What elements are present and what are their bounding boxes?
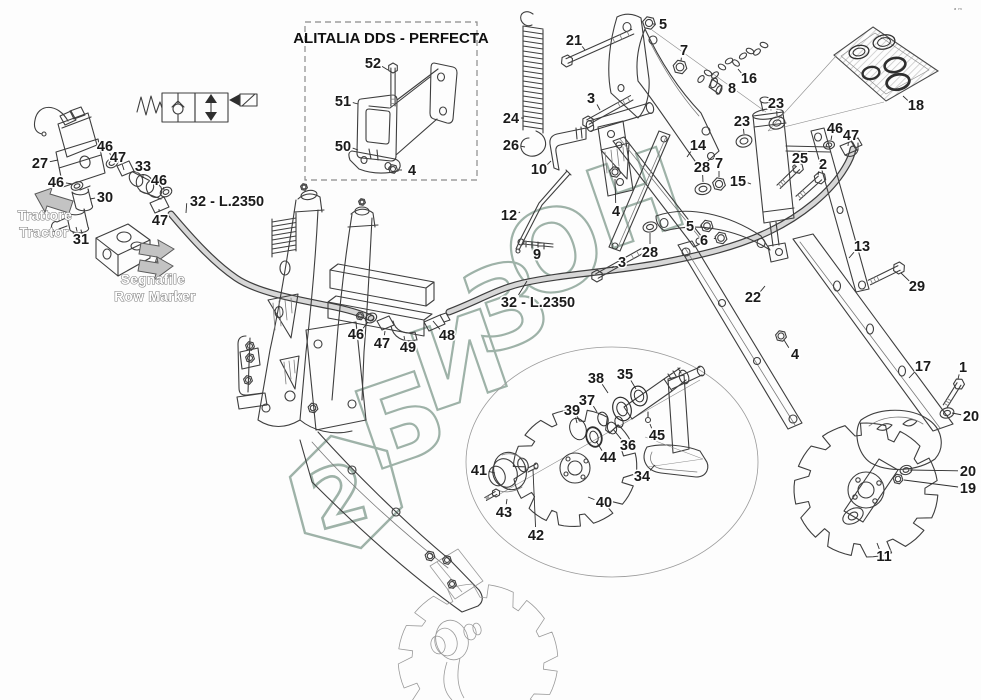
- leader-line: [50, 160, 58, 162]
- hex-nut-bore: [450, 582, 455, 587]
- part-label: 35: [617, 367, 633, 383]
- part-label: 50: [335, 139, 351, 155]
- hydraulic-cylinder: [752, 97, 862, 262]
- hex-nut-bore: [778, 333, 784, 339]
- bolt-shank: [777, 166, 800, 188]
- seal-kit-panel: [768, 27, 938, 131]
- parts-diagram-canvas: 2 БИЗОН: [0, 0, 981, 700]
- leader-line: [910, 470, 958, 471]
- part-label: 9: [533, 247, 541, 263]
- part-label: 26: [503, 138, 519, 154]
- part-label: 13: [854, 239, 870, 255]
- part-label: 5: [659, 17, 667, 33]
- hex-nut: [715, 232, 727, 243]
- bottom-disc-assembly: [388, 549, 568, 700]
- part-label: 20: [960, 464, 976, 480]
- leader-line: [904, 480, 958, 487]
- tension-spring: [521, 12, 546, 156]
- part-label: 11: [876, 549, 891, 565]
- part-label: 1: [959, 360, 967, 376]
- tractor-label-it: Trattore: [18, 208, 72, 223]
- hex-nut-bore: [391, 167, 396, 172]
- part-label: 6: [700, 233, 708, 249]
- hex-nut-bore: [310, 405, 316, 411]
- part-label: 5: [686, 219, 694, 235]
- chain-link: [697, 74, 706, 83]
- hex-nut: [776, 331, 787, 341]
- chain-link: [759, 41, 768, 48]
- part-label: 15: [730, 174, 746, 190]
- part-label: 29: [909, 279, 925, 295]
- part-label: 28: [694, 160, 710, 176]
- part-label: 49: [400, 340, 416, 356]
- washer-bore: [699, 186, 708, 193]
- washer: [70, 180, 84, 192]
- washer-bore: [903, 467, 910, 473]
- part-label: 7: [680, 43, 688, 59]
- marker-label-en: Row Marker: [114, 289, 196, 304]
- leader-line: [382, 66, 388, 70]
- hex-nut-bore: [715, 180, 722, 187]
- part-label: 14: [690, 138, 706, 154]
- part-label: 20: [963, 409, 979, 425]
- ring: [584, 425, 604, 449]
- part-label: 47: [843, 128, 859, 144]
- washer: [694, 182, 712, 196]
- part-label: 44: [600, 450, 616, 466]
- part-label: 30: [97, 190, 113, 206]
- parts-diagram-page: 2 БИЗОН: [0, 0, 981, 700]
- notched-disc: [790, 418, 943, 561]
- leader-line: [404, 336, 405, 339]
- part-label: 8: [728, 81, 736, 97]
- chain-link: [738, 52, 747, 61]
- part-label: 41: [471, 463, 487, 479]
- part-label: 46: [348, 327, 364, 343]
- part-label: 38: [588, 371, 604, 387]
- part-label: 23: [768, 96, 784, 112]
- part-label: 28: [642, 245, 658, 261]
- part-label: 10: [531, 162, 547, 178]
- corner-mark: ᵃ ᵐ: [954, 7, 962, 14]
- leader-line: [76, 227, 77, 232]
- part-label: 43: [496, 505, 512, 521]
- marker-label-it: Segnafile: [121, 272, 186, 287]
- part-label: 46: [827, 121, 843, 137]
- part-label: 3: [587, 91, 595, 107]
- part-label: 45: [649, 428, 665, 444]
- part-label: 46: [48, 175, 64, 191]
- chain-link: [731, 59, 740, 68]
- bolt-head: [389, 63, 398, 73]
- part-label: 21: [566, 33, 582, 49]
- washer-bore: [739, 137, 748, 145]
- square-bar-17: [793, 234, 953, 431]
- bolt-threads: [391, 95, 395, 103]
- part-label: 52: [365, 56, 381, 72]
- washer-bore: [162, 189, 169, 196]
- leader-line: [66, 183, 72, 184]
- part-label: 47: [152, 213, 168, 229]
- part-label: 16: [741, 71, 757, 87]
- leader-line: [384, 331, 385, 335]
- washer: [735, 133, 754, 149]
- leader-line: [521, 146, 525, 147]
- bolt-shank: [943, 383, 961, 407]
- hex-nut: [673, 60, 687, 73]
- part-label: 46: [151, 173, 167, 189]
- hex-nut-bore: [302, 185, 306, 189]
- part-label: 32 - L.2350: [501, 295, 575, 311]
- part-label: 3: [618, 255, 626, 271]
- part-label: 37: [579, 393, 595, 409]
- marker-arm-13: [811, 128, 869, 292]
- leader-line: [186, 203, 187, 213]
- washer-bore: [73, 183, 80, 189]
- part-label: 48: [439, 328, 455, 344]
- part-label: 23: [734, 114, 750, 130]
- part-label: 47: [374, 336, 390, 352]
- part-label: 4: [612, 204, 620, 220]
- part-label: 19: [960, 481, 976, 497]
- tractor-label-en: Tractor: [19, 225, 69, 240]
- washer-bore: [943, 410, 951, 417]
- leader-line: [597, 104, 600, 110]
- part-label: 27: [32, 156, 48, 172]
- hex-nut-bore: [676, 63, 684, 71]
- part-label: 39: [564, 403, 580, 419]
- part-label: 36: [620, 438, 636, 454]
- leader-line: [353, 103, 358, 104]
- part-label: 18: [908, 98, 924, 114]
- watermark-logo-char: 2: [300, 444, 378, 548]
- hex-nut-bore: [248, 356, 253, 361]
- ring: [615, 401, 629, 417]
- hex-nut-bore: [895, 476, 901, 482]
- notched-disc: [388, 574, 568, 700]
- part-label: 34: [634, 469, 650, 485]
- part-label: 24: [503, 111, 519, 127]
- part-label: 33: [135, 159, 151, 175]
- ring: [588, 430, 599, 444]
- marker-arrow-icon: [139, 240, 174, 263]
- hex-nut: [643, 17, 656, 29]
- leader-line: [784, 340, 789, 348]
- part-label: 25: [792, 151, 808, 167]
- alitalia-box-title: ALITALIA DDS - PERFECTA: [293, 30, 489, 47]
- part-label: 22: [745, 290, 761, 306]
- chain-link: [752, 48, 761, 57]
- marker-disc-right: [790, 410, 943, 561]
- washer-bore: [772, 119, 781, 127]
- hex-nut: [713, 178, 726, 190]
- part-label: 47: [110, 150, 126, 166]
- hex-nut-bore: [445, 558, 450, 563]
- hex-nut: [701, 220, 713, 231]
- hex-nut-bore: [645, 19, 652, 26]
- hex-nut: [893, 474, 903, 484]
- hydraulic-schematic-symbol: [137, 93, 257, 122]
- bolt-shank: [391, 68, 395, 106]
- leader-line: [588, 497, 594, 500]
- bolt-shank: [868, 266, 900, 285]
- part-label: 4: [408, 163, 416, 179]
- part-label: 4: [791, 347, 799, 363]
- hex-nut-bore: [360, 200, 364, 204]
- part-label: 32 - L.2350: [190, 194, 264, 210]
- chain-links: [697, 41, 769, 83]
- part-label: 2: [819, 157, 827, 173]
- leader-line: [547, 161, 551, 165]
- part-label: 12: [501, 208, 517, 224]
- part-label: 7: [715, 156, 723, 172]
- part-label: 40: [596, 495, 612, 511]
- part-label: 17: [915, 359, 931, 375]
- part-label: 31: [73, 232, 89, 248]
- hex-nut-bore: [427, 553, 433, 559]
- leader-line: [506, 499, 507, 504]
- part-label: 42: [528, 528, 544, 544]
- leader-line: [748, 183, 751, 184]
- hex-nut-bore: [718, 235, 725, 242]
- part-label: 51: [335, 94, 351, 110]
- chain-link: [717, 63, 726, 71]
